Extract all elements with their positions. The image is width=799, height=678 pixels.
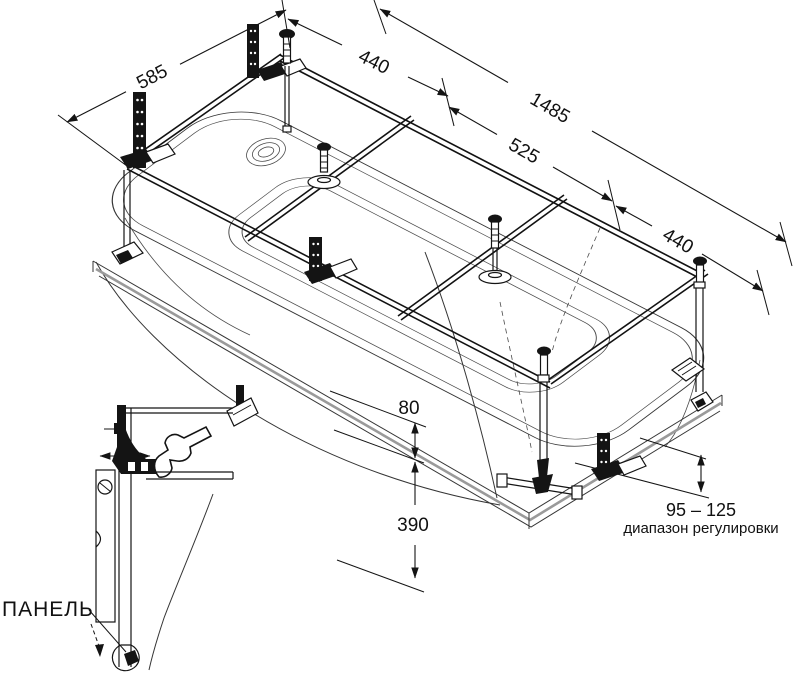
dim-rim-floor-label: 390: [397, 515, 429, 536]
drain: [243, 133, 289, 170]
ext-cross2: [608, 180, 620, 230]
ext-length-left: [374, 0, 386, 34]
rim-clamp: [672, 358, 704, 381]
tub-wall-curve-dashed: [552, 228, 600, 352]
ext-width-near: [58, 115, 127, 166]
cross-rail-2: [398, 195, 567, 320]
rim-top-section: [120, 408, 233, 413]
dim-total-length-label: 1485: [526, 89, 573, 128]
dim-width-label: 585: [133, 61, 171, 94]
removal-direction-arrow: [91, 624, 99, 646]
fixing-bracket-plate: [96, 470, 115, 622]
apron-clip: [227, 385, 258, 426]
panel-detail-inset: ПАНЕЛЬ: [2, 405, 233, 671]
legs-and-hardware: [112, 24, 713, 499]
tub-wall-section-curve: [149, 494, 213, 670]
ext-cross1: [442, 78, 454, 126]
tub-base: [93, 261, 722, 529]
ext-length-right: [780, 222, 792, 266]
dim-left-section-label: 440: [355, 46, 393, 79]
ext-right-section: [757, 270, 769, 315]
bathtub-frame-drawing: 585 440 1485 525 440 80 390 95 – 125 диа…: [0, 0, 799, 678]
middle-support-leg-1: [308, 143, 340, 189]
ref-line-floor: [337, 560, 424, 592]
wrench-icon: [155, 427, 212, 477]
middle-support-leg-2: [479, 215, 511, 284]
dim-middle-section-label: 525: [505, 134, 543, 168]
dim-rim-offset-label: 80: [398, 398, 419, 419]
middle-bracket: [304, 237, 357, 284]
adjust-screw: [114, 423, 123, 434]
panel-label: ПАНЕЛЬ: [2, 598, 94, 621]
installation-diagram: 585 440 1485 525 440 80 390 95 – 125 диа…: [0, 0, 799, 678]
adjust-range-label: 95 – 125: [666, 500, 736, 520]
adjust-caption-label: диапазон регулировки: [623, 520, 778, 537]
rear-left-leg: [247, 24, 306, 132]
mounting-frame: [124, 54, 708, 388]
